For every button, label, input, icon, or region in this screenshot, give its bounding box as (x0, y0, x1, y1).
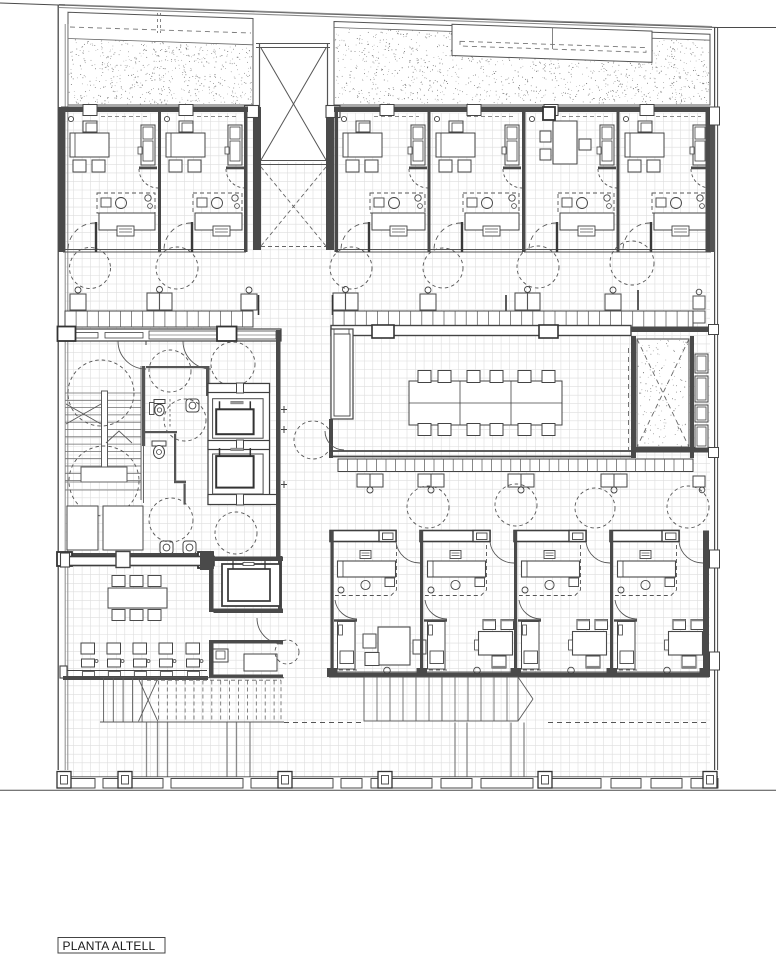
svg-text:PLANTA ALTELL: PLANTA ALTELL (63, 939, 156, 953)
